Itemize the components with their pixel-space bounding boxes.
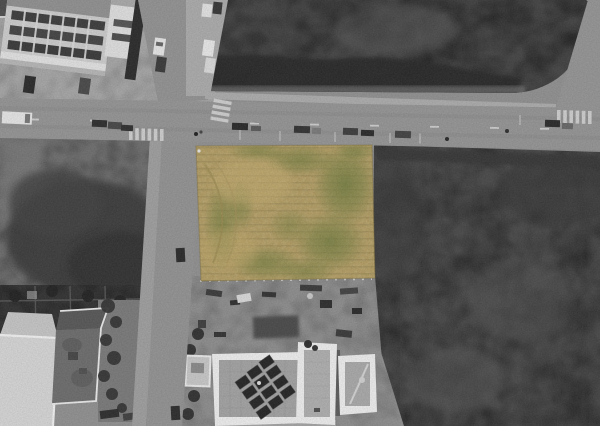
- aerial-photo: [0, 0, 600, 426]
- film-grain-light: [0, 0, 600, 426]
- aerial-photo-canvas: [0, 0, 600, 426]
